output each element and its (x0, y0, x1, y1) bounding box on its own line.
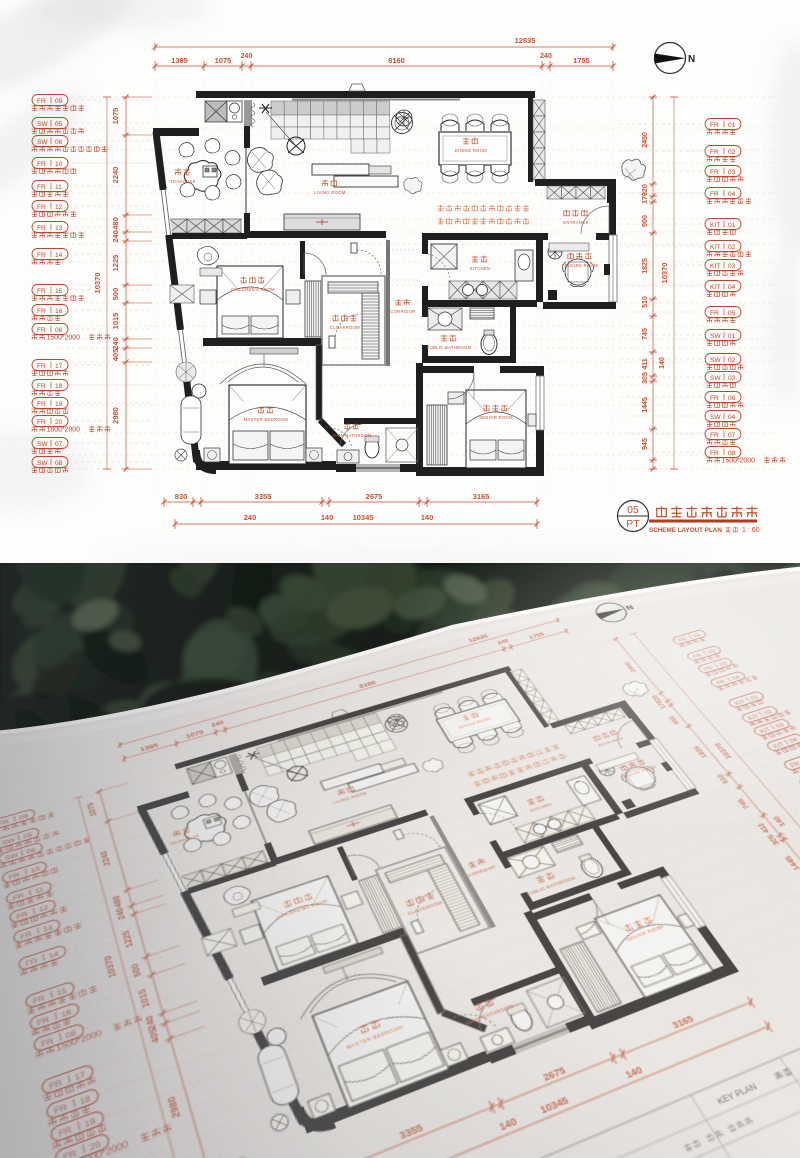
svg-text:KIT: KIT (710, 284, 720, 291)
svg-text:08: 08 (728, 450, 736, 457)
svg-text:240: 240 (111, 230, 120, 243)
svg-text:1445: 1445 (783, 854, 800, 871)
svg-text:FR: FR (37, 161, 46, 168)
svg-text:11: 11 (35, 886, 46, 895)
svg-text:1500*2000: 1500*2000 (47, 335, 81, 342)
svg-text:2675: 2675 (366, 492, 383, 501)
svg-text:04: 04 (728, 414, 736, 421)
svg-text:SW: SW (37, 441, 48, 448)
svg-text:2980: 2980 (111, 407, 120, 424)
svg-text:03: 03 (728, 263, 736, 270)
svg-text:3165: 3165 (671, 1015, 696, 1031)
svg-text:240: 240 (111, 337, 120, 350)
svg-text:KEY PLAN: KEY PLAN (716, 1083, 759, 1107)
svg-text:FR: FR (710, 149, 719, 156)
svg-text:SW: SW (37, 460, 48, 467)
svg-text:02: 02 (728, 244, 736, 251)
svg-text:PUBLIC BATHROOM: PUBLIC BATHROOM (427, 345, 472, 350)
svg-text:13: 13 (43, 924, 54, 934)
svg-text:LEISURE ROOM: LEISURE ROOM (562, 263, 598, 268)
svg-text:240: 240 (211, 720, 226, 729)
svg-text:05: 05 (23, 832, 34, 840)
svg-text:CORRIDOR: CORRIDOR (467, 865, 497, 878)
svg-text:12: 12 (39, 905, 50, 914)
svg-text:ENTRANCE: ENTRANCE (563, 220, 588, 225)
svg-text:240: 240 (115, 906, 128, 921)
svg-text:LIVING ROOM: LIVING ROOM (314, 190, 345, 195)
svg-text:17: 17 (55, 363, 63, 370)
svg-text:405: 405 (148, 1026, 162, 1044)
svg-text:745: 745 (736, 797, 751, 809)
svg-text:CHILDREN'S ROOM: CHILDREN'S ROOM (231, 287, 275, 292)
svg-text:06: 06 (55, 139, 63, 146)
svg-text:411: 411 (642, 358, 649, 369)
svg-text:SCHEME LAYOUT PLAN: SCHEME LAYOUT PLAN (649, 527, 722, 534)
svg-text:FR: FR (37, 401, 46, 408)
svg-text:900: 900 (668, 715, 682, 726)
svg-text:05: 05 (55, 121, 63, 128)
svg-text:1075: 1075 (111, 108, 120, 125)
svg-text:06: 06 (728, 395, 736, 402)
svg-text:FR: FR (710, 432, 719, 439)
svg-text:305: 305 (642, 372, 649, 384)
svg-text:945: 945 (642, 438, 649, 450)
svg-text:FR: FR (37, 252, 46, 259)
svg-text:140: 140 (772, 815, 788, 828)
svg-text:12835: 12835 (468, 634, 490, 644)
svg-text:480: 480 (111, 217, 120, 230)
svg-text:1755: 1755 (573, 56, 590, 65)
svg-text:11: 11 (55, 184, 62, 191)
svg-text:CLOAKROOM: CLOAKROOM (407, 900, 443, 916)
svg-text:14: 14 (48, 951, 60, 961)
svg-text:05: 05 (728, 310, 736, 317)
svg-text:3355: 3355 (255, 492, 272, 501)
svg-text:10: 10 (55, 161, 63, 168)
svg-text:KITCHEN: KITCHEN (529, 803, 552, 813)
svg-text:17: 17 (74, 1071, 87, 1083)
svg-text:FR: FR (37, 383, 46, 390)
svg-text:08: 08 (55, 327, 63, 334)
svg-text:15: 15 (56, 987, 68, 998)
svg-text:411: 411 (756, 822, 772, 834)
svg-text:FR: FR (37, 98, 46, 105)
svg-text:FR: FR (37, 204, 46, 211)
svg-text:10370: 10370 (660, 263, 669, 284)
svg-text:FR: FR (710, 191, 719, 198)
svg-text:FR: FR (37, 288, 46, 295)
svg-text:08: 08 (55, 460, 63, 467)
svg-text:FR: FR (710, 395, 719, 402)
svg-text:PT: PT (626, 518, 640, 530)
svg-text:830: 830 (175, 492, 188, 501)
svg-text:1800*2000: 1800*2000 (47, 427, 81, 434)
svg-text:KIT: KIT (710, 244, 720, 251)
svg-text:KIT: KIT (710, 222, 720, 229)
svg-text:1075: 1075 (215, 56, 232, 65)
svg-text:DINING ROOM: DINING ROOM (455, 148, 487, 153)
svg-text:FR: FR (710, 310, 719, 317)
svg-text:02: 02 (728, 149, 736, 156)
svg-text:N: N (688, 54, 695, 65)
svg-text:140: 140 (421, 513, 434, 522)
svg-text:19: 19 (55, 401, 63, 408)
svg-text:MAIN BATHROOM: MAIN BATHROOM (465, 1004, 515, 1027)
svg-text:FR: FR (37, 327, 46, 334)
svg-text:20: 20 (55, 419, 63, 426)
svg-text:10370: 10370 (93, 273, 102, 294)
svg-text:1 : 60: 1 : 60 (742, 527, 760, 534)
svg-text:2450: 2450 (642, 132, 649, 148)
svg-text:09: 09 (55, 98, 63, 105)
svg-text:745: 745 (642, 328, 649, 340)
svg-text:FR: FR (710, 169, 719, 176)
svg-text:10370: 10370 (104, 954, 119, 979)
svg-text:03: 03 (728, 169, 736, 176)
svg-text:240: 240 (540, 53, 552, 60)
svg-text:18: 18 (55, 383, 63, 390)
svg-text:01: 01 (728, 222, 736, 229)
svg-text:3165: 3165 (473, 492, 490, 501)
svg-text:500: 500 (130, 962, 143, 978)
svg-text:FR: FR (710, 450, 719, 457)
svg-text:FR: FR (37, 363, 46, 370)
svg-text:16: 16 (55, 308, 63, 315)
svg-text:FR: FR (710, 122, 719, 129)
svg-text:10345: 10345 (353, 513, 374, 522)
svg-text:03: 03 (728, 375, 736, 382)
svg-text:1365: 1365 (171, 56, 188, 65)
svg-text:SW: SW (37, 121, 48, 128)
svg-text:01: 01 (728, 333, 736, 340)
svg-text:KIT: KIT (710, 263, 720, 270)
svg-text:01: 01 (728, 122, 736, 129)
svg-text:SW: SW (710, 375, 721, 382)
svg-text:FR: FR (37, 184, 46, 191)
svg-text:1825: 1825 (693, 745, 710, 759)
svg-text:140: 140 (321, 513, 334, 522)
svg-text:CORRIDOR: CORRIDOR (390, 309, 415, 314)
svg-text:1075: 1075 (87, 801, 99, 817)
svg-text:FR: FR (37, 225, 46, 232)
svg-text:SW: SW (37, 139, 48, 146)
svg-text:SW: SW (710, 357, 721, 364)
svg-text:KITCHEN: KITCHEN (470, 266, 490, 271)
svg-text:1225: 1225 (122, 929, 136, 949)
svg-text:1500*2000: 1500*2000 (722, 458, 756, 465)
svg-text:10370: 10370 (714, 742, 734, 760)
svg-text:2980: 2980 (167, 1094, 183, 1119)
svg-text:16: 16 (61, 1009, 73, 1020)
svg-text:240: 240 (497, 638, 511, 646)
svg-text:12835: 12835 (515, 36, 536, 45)
svg-text:05: 05 (627, 504, 639, 516)
svg-text:FR: FR (63, 1149, 79, 1158)
svg-text:1015: 1015 (111, 313, 120, 330)
svg-text:FR: FR (37, 419, 46, 426)
svg-text:510: 510 (642, 296, 649, 308)
svg-text:2675: 2675 (542, 1066, 568, 1084)
svg-text:13: 13 (55, 225, 63, 232)
svg-text:SW: SW (710, 414, 721, 421)
svg-text:240: 240 (244, 513, 257, 522)
svg-text:15: 15 (55, 288, 63, 295)
svg-text:240: 240 (241, 53, 253, 60)
svg-text:1500*2000: 1500*2000 (55, 1029, 103, 1054)
svg-text:500: 500 (111, 288, 120, 301)
svg-text:SENIOR ROOM: SENIOR ROOM (479, 415, 513, 420)
svg-text:04: 04 (728, 284, 736, 291)
svg-text:MAIN BATHROOM: MAIN BATHROOM (332, 433, 372, 438)
svg-text:TEAHOUSE: TEAHOUSE (170, 179, 195, 184)
svg-text:170: 170 (642, 192, 649, 204)
svg-text:900: 900 (642, 215, 649, 227)
svg-text:12: 12 (55, 204, 63, 211)
svg-text:FR: FR (37, 308, 46, 315)
svg-text:SW: SW (710, 333, 721, 340)
svg-text:1800*2000: 1800*2000 (79, 1139, 131, 1158)
svg-text:CLOAKROOM: CLOAKROOM (330, 325, 360, 330)
svg-text:2240: 2240 (111, 167, 120, 184)
svg-text:1225: 1225 (111, 255, 120, 272)
svg-text:405: 405 (111, 349, 120, 362)
svg-text:19: 19 (84, 1117, 97, 1130)
svg-text:2240: 2240 (100, 849, 113, 866)
svg-text:10345: 10345 (539, 1096, 571, 1117)
svg-text:14: 14 (55, 252, 63, 259)
svg-text:07: 07 (55, 441, 63, 448)
svg-text:07: 07 (728, 432, 736, 439)
svg-text:8160: 8160 (388, 56, 405, 65)
svg-text:10: 10 (30, 866, 41, 875)
svg-text:04: 04 (728, 191, 736, 198)
svg-text:06: 06 (26, 847, 37, 855)
svg-text:1445: 1445 (642, 397, 649, 413)
svg-text:MASTER BEDROOM: MASTER BEDROOM (244, 417, 289, 422)
svg-text:1825: 1825 (642, 258, 649, 274)
svg-text:02: 02 (728, 357, 736, 364)
svg-text:09: 09 (19, 813, 29, 821)
